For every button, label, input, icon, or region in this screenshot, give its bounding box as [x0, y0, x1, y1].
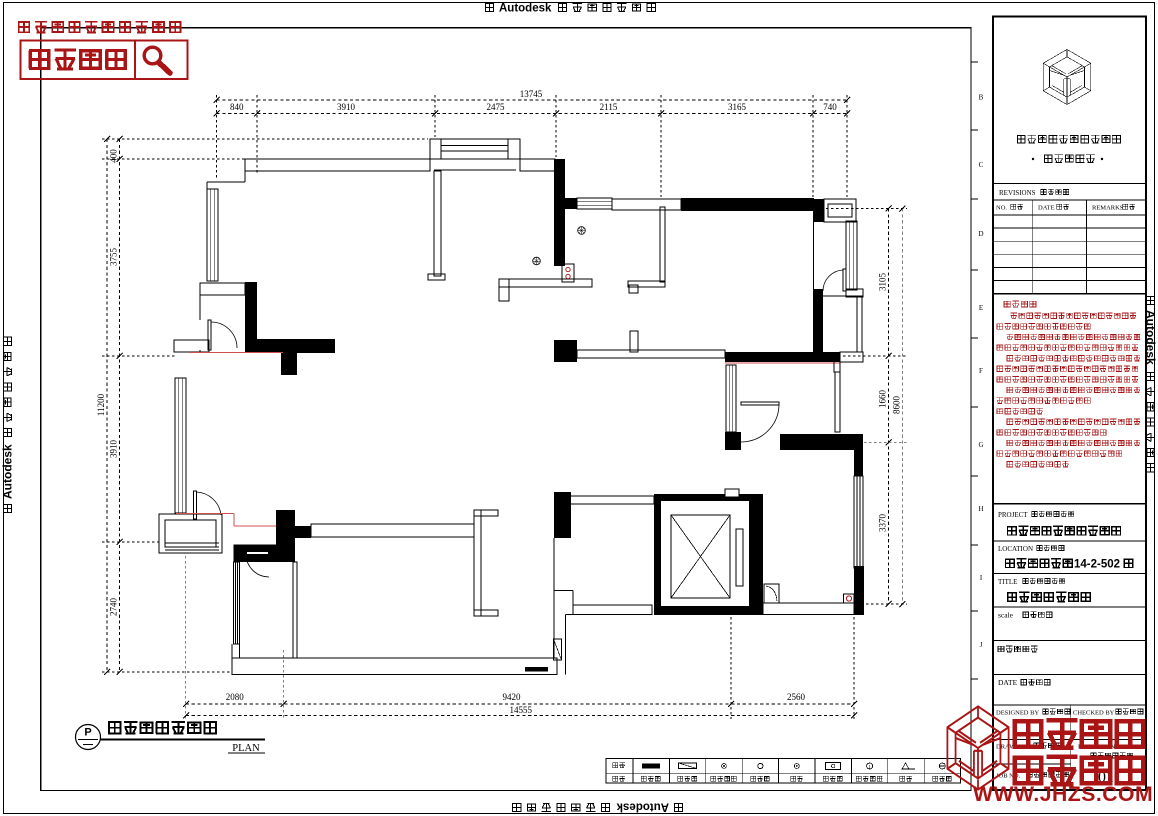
svg-text:F: F [979, 367, 983, 375]
svg-text:740: 740 [823, 102, 837, 112]
svg-text:8600: 8600 [892, 396, 902, 415]
svg-text:DATE: DATE [1038, 205, 1055, 212]
svg-text:PROJECT: PROJECT [998, 511, 1028, 519]
svg-text:Autodesk: Autodesk [1144, 310, 1158, 365]
svg-text:D: D [978, 230, 983, 238]
svg-text:REMARKS: REMARKS [1092, 205, 1124, 212]
svg-text:3370: 3370 [878, 514, 888, 533]
svg-text:13745: 13745 [520, 89, 543, 99]
svg-text:LOCATION: LOCATION [998, 545, 1033, 553]
svg-text:DESIGNED BY: DESIGNED BY [996, 710, 1039, 717]
svg-text:14555: 14555 [510, 705, 533, 715]
svg-text:Autodesk: Autodesk [499, 3, 552, 15]
svg-text:C: C [979, 161, 984, 169]
svg-text:E: E [979, 304, 983, 312]
svg-text:2475: 2475 [487, 102, 506, 112]
svg-text:3910: 3910 [337, 102, 356, 112]
svg-text:3165: 3165 [728, 102, 747, 112]
svg-text:TITLE: TITLE [998, 578, 1017, 586]
svg-text:14-2-502: 14-2-502 [1074, 559, 1120, 571]
svg-text:WWW.JHZS.COM: WWW.JHZS.COM [973, 783, 1153, 806]
svg-text:PLAN: PLAN [232, 743, 260, 754]
svg-text:B: B [979, 94, 984, 102]
svg-text:400: 400 [109, 149, 119, 163]
svg-text:3755: 3755 [109, 248, 119, 267]
svg-text:REVISIONS: REVISIONS [999, 189, 1036, 197]
svg-text:CHECKED BY: CHECKED BY [1073, 710, 1115, 717]
svg-text:840: 840 [230, 102, 244, 112]
svg-text:Autodesk: Autodesk [1, 444, 15, 499]
svg-text:2560: 2560 [787, 692, 806, 702]
svg-text:3910: 3910 [109, 440, 119, 459]
svg-text:scale: scale [998, 611, 1014, 620]
svg-text:H: H [978, 505, 983, 513]
svg-text:3105: 3105 [878, 273, 888, 292]
svg-text:DATE: DATE [998, 678, 1018, 687]
svg-text:2115: 2115 [600, 102, 618, 112]
svg-text:11200: 11200 [96, 393, 106, 416]
svg-text:J: J [980, 641, 983, 649]
svg-text:1660: 1660 [878, 390, 888, 409]
svg-text:G: G [978, 441, 983, 449]
svg-text:2740: 2740 [109, 598, 119, 617]
svg-text:2080: 2080 [226, 692, 245, 702]
svg-text:NO.: NO. [996, 205, 1007, 212]
svg-text:Autodesk: Autodesk [616, 801, 669, 813]
svg-text:9420: 9420 [503, 692, 522, 702]
svg-text:P: P [84, 727, 91, 739]
